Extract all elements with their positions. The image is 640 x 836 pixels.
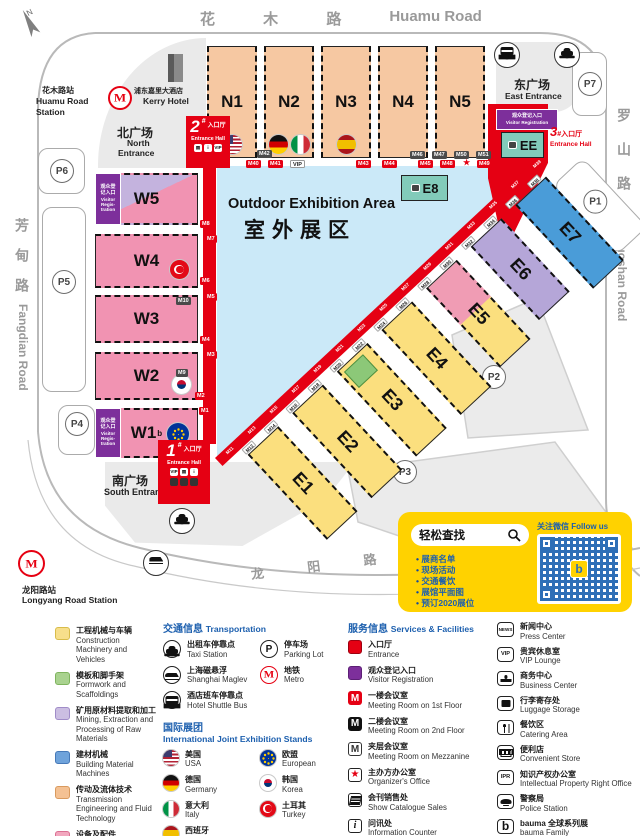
service-icon — [190, 478, 198, 486]
gate-marker: M1 — [199, 407, 211, 415]
gate-marker: M42 — [257, 150, 272, 158]
info-icon: i — [204, 144, 212, 152]
turkey-flag-icon — [170, 260, 189, 279]
hall-label: N4 — [392, 92, 414, 112]
flag-icon — [260, 750, 276, 766]
parking-label-p4: P4 — [65, 412, 89, 436]
follow-us-label: 关注微信 Follow us — [537, 521, 608, 532]
promo-item: 现场活动 — [416, 565, 474, 576]
gate-marker: M40 — [246, 160, 261, 168]
gate-marker: M6 — [200, 277, 212, 285]
kerry-hotel-icon — [168, 54, 183, 82]
hall-e8[interactable]: E8 — [401, 175, 448, 201]
entrance-hall-2[interactable]: 2#入口厅 Entrance Hall ▤iVIP — [186, 116, 230, 168]
hall-n3[interactable]: N3 — [321, 46, 371, 158]
fangdian-road-cn: 芳甸路 — [12, 218, 32, 308]
gate-marker: M44 — [382, 160, 397, 168]
huamu-station-en2: Station — [36, 107, 65, 117]
hall-label: EE — [520, 138, 537, 153]
transport-icon — [163, 640, 181, 658]
gate-marker: M4 — [200, 336, 212, 344]
legend-flag-item: 西班牙Spain — [163, 826, 256, 836]
huamu-station-cn: 花木路站 — [42, 85, 74, 96]
gate-marker: M2 — [195, 392, 207, 400]
road-label-huamu: 花 木 路 Huamu Road — [200, 8, 482, 29]
parking-p6[interactable]: P6 — [38, 148, 85, 194]
facility-icon — [497, 671, 514, 686]
kerry-hotel-cn: 浦东嘉里大酒店 — [134, 86, 183, 96]
legend-facility-item: 知识产权办公室Intellectual Property Right Offic… — [497, 770, 637, 789]
gate-marker: M41 — [268, 160, 283, 168]
legend-service-item: 入口厅Entrance — [348, 640, 493, 659]
facility-icon — [497, 745, 514, 760]
service-icon — [348, 666, 362, 680]
bauma-mark: b — [157, 429, 162, 438]
area-swatch — [55, 672, 70, 685]
area-swatch — [55, 707, 70, 720]
spain-flag-icon — [337, 135, 356, 154]
outdoor-area-label-cn: 室外展区 — [244, 214, 464, 244]
service-icon — [348, 742, 362, 756]
parking-label-p5: P5 — [52, 270, 76, 294]
visitor-registration-w5: 观众登记入口 VisitorRegis-tration — [95, 173, 121, 225]
wechat-promo-box: 轻松查找 展商名单现场活动交通餐饮展馆平面图预订2020展位 关注微信 Foll… — [398, 512, 632, 612]
facility-icon — [497, 720, 514, 735]
facility-icon — [497, 696, 514, 711]
legend-flags: 欧盟European 韩国Korea 土耳其Turkey — [260, 750, 353, 836]
wechat-qr-code[interactable]: b — [537, 534, 621, 604]
hall-label: W2 — [134, 366, 160, 386]
legend-areas: 工程机械与车辆Construction Machinery and Vehicl… — [55, 626, 157, 836]
legend-flag-item: 韩国Korea — [260, 775, 353, 794]
services-title: 服务信息 Services & Facilities — [348, 624, 493, 635]
hall-label: W1 — [131, 423, 157, 443]
gate-marker: M8 — [200, 220, 212, 228]
gate-marker: M48 — [440, 160, 455, 168]
gate-marker: M3 — [205, 351, 217, 359]
promo-item: 展商名单 — [416, 554, 474, 565]
flag-icon — [163, 775, 179, 791]
area-swatch — [55, 751, 70, 764]
north-entrance-en1: North — [127, 138, 150, 148]
area-swatch — [55, 786, 70, 799]
legend-service-item: 二楼会议室Meeting Room on 2nd Floor — [348, 717, 493, 736]
flag-icon — [260, 801, 276, 817]
west-red-corridor — [203, 162, 216, 444]
service-icon — [348, 793, 362, 807]
hall-label: W5 — [134, 189, 160, 209]
legend-facility-item: 餐饮区Catering Area — [497, 720, 637, 739]
legend-facility-item: bauma 全球系列展bauma Family — [497, 819, 637, 836]
legend-area-item: 矿用原材料提取和加工Mining, Extraction and Process… — [55, 706, 157, 744]
hall-label: E8 — [423, 181, 439, 196]
promo-list: 展商名单现场活动交通餐饮展馆平面图预订2020展位 — [416, 554, 474, 609]
flag-icon — [260, 775, 276, 791]
legend-facility-item: 便利店Convenient Store — [497, 745, 637, 764]
gate-marker: M7 — [205, 235, 217, 243]
service-icon — [348, 691, 362, 705]
gate-marker: M51 — [476, 151, 491, 159]
store-icon — [508, 141, 517, 149]
legend-flag-item: 意大利Italy — [163, 801, 256, 820]
vip-icon: VIP — [170, 468, 178, 476]
visitor-registration-ee: 观众登记入口Visitor Registration — [496, 109, 558, 130]
qr-finder — [540, 537, 553, 550]
service-icon — [348, 768, 362, 782]
gate-marker: M49 — [477, 160, 492, 168]
korea-flag-icon — [172, 375, 191, 394]
legend-transport-item: 酒店班车停靠点Hotel Shuttle Bus — [163, 691, 256, 710]
legend-flag-item: 德国Germany — [163, 775, 256, 794]
gate-marker: M9 — [176, 369, 188, 377]
longyang-station-en: Longyang Road Station — [22, 595, 117, 605]
legend-services: 入口厅Entrance 观众登记入口Visitor Registration 一… — [348, 640, 493, 836]
visitor-registration-w1: 观众登记入口 VisitorRegis-tration — [95, 408, 121, 458]
legend-transport: 停车场Parking Lot 地铁Metro — [260, 640, 353, 717]
legend-facility-item: 新闻中心Press Center — [497, 622, 637, 641]
hall-n5[interactable]: N5 — [435, 46, 485, 158]
gate-marker: M50 — [454, 151, 469, 159]
legend-service-item: 主办方办公室Organizer's Office — [348, 768, 493, 787]
vip-icon: VIP — [214, 144, 222, 152]
legend-service-item: 观众登记入口Visitor Registration — [348, 666, 493, 685]
gate-marker: M43 — [356, 160, 371, 168]
legend-facility-item: 商务中心Business Center — [497, 671, 637, 690]
transport-icon — [260, 666, 278, 684]
facility-icon — [497, 622, 514, 637]
store-icon — [411, 184, 420, 192]
legend-service-item: 夹层会议室Meeting Room on Mezzanine — [348, 742, 493, 761]
legend-facility-item: 警察局Police Station — [497, 794, 637, 813]
legend-flag-item: 欧盟European — [260, 750, 353, 769]
legend-area-item: 工程机械与车辆Construction Machinery and Vehicl… — [55, 626, 157, 664]
search-label: 轻松查找 — [419, 527, 465, 543]
legend-area-item: 传动及流体技术Transmission Engineering and Flui… — [55, 785, 157, 823]
huamu-road-en: Huamu Road — [389, 8, 482, 29]
north-entrance-en2: Entrance — [118, 148, 154, 158]
metro-icon — [18, 550, 45, 577]
exhibition-map: N 花 木 路 Huamu Road 罗山路 Luoshan Road 芳甸路 … — [0, 0, 640, 836]
legend-transport-item: 地铁Metro — [260, 666, 353, 685]
legend-transport-item: 上海磁悬浮Shanghai Maglev — [163, 666, 256, 685]
legend-service-item: 一楼会议室Meeting Room on 1st Floor — [348, 691, 493, 710]
legend: 工程机械与车辆Construction Machinery and Vehicl… — [0, 616, 640, 836]
east-entrance-en: East Entrance — [505, 91, 562, 101]
legend-facility-item: 贵宾休息室VIP Lounge — [497, 647, 637, 666]
catalogue-icon: ▤ — [194, 144, 202, 152]
huamu-road-cn: 花 木 路 — [200, 8, 363, 29]
flag-icon — [163, 826, 179, 836]
gate-marker: ★ — [463, 159, 470, 167]
qr-finder — [540, 588, 553, 601]
legend-area-item: 模板和脚手架Formwork and Scaffoldings — [55, 671, 157, 700]
hall-n4[interactable]: N4 — [378, 46, 428, 158]
legend-facilities: 新闻中心Press Center 贵宾休息室VIP Lounge 商务中心Bus… — [497, 622, 637, 836]
area-swatch — [55, 627, 70, 640]
huamu-station-en1: Huamu Road — [36, 96, 88, 106]
legend-flag-item: 土耳其Turkey — [260, 801, 353, 820]
qr-finder — [605, 537, 618, 550]
fangdian-road-en: Fangdian Road — [16, 304, 30, 391]
facility-icon — [497, 647, 514, 662]
legend-flag-item: 美国USA — [163, 750, 256, 769]
legend-area-item: 设备及配件Equipment and Spare Parts — [55, 830, 157, 836]
gate-marker: M46 — [410, 151, 425, 159]
legend-service-item: 会刊销售处Show Catalogue Sales — [348, 793, 493, 812]
legend-transport-item: 出租车停靠点Taxi Station — [163, 640, 256, 659]
parking-p4[interactable]: P4 — [58, 405, 95, 455]
promo-item: 展馆平面图 — [416, 587, 474, 598]
hall-label: N1 — [221, 92, 243, 112]
entrance-hall-1[interactable]: 1#入口厅 Entrance Hall VIP▤i — [158, 440, 210, 504]
joint-stands-title: 国际展团 International Joint Exhibition Stan… — [163, 723, 353, 745]
gate-marker: M10 — [176, 297, 191, 305]
taxi-icon — [169, 508, 195, 534]
transport-icon — [163, 666, 181, 684]
flag-icon — [163, 750, 179, 766]
hall-label: W3 — [134, 309, 160, 329]
hall-n2[interactable]: N2 — [264, 46, 314, 158]
area-swatch — [55, 831, 70, 836]
gate-marker: VIP — [290, 160, 305, 168]
gate-marker: M5 — [205, 293, 217, 301]
search-icon — [507, 528, 521, 542]
catalogue-icon: ▤ — [180, 468, 188, 476]
transport-icon — [163, 691, 181, 709]
service-icon — [180, 478, 188, 486]
service-icon — [348, 819, 362, 833]
facility-icon — [497, 770, 514, 785]
parking-p5[interactable]: P5 — [42, 207, 86, 392]
facility-icon — [497, 819, 514, 834]
gate-marker: M47 — [432, 151, 447, 159]
italy-flag-icon — [291, 135, 310, 154]
transport-title: 交通信息 Transportation — [163, 624, 353, 635]
parking-label-p6: P6 — [50, 159, 74, 183]
entrance-hall-3-label: 3#入口厅 Entrance Hall — [550, 124, 592, 149]
info-icon: i — [190, 468, 198, 476]
legend-area-item: 建材机械Building Material Machines — [55, 750, 157, 779]
service-icon — [348, 717, 362, 731]
facility-icon — [497, 794, 514, 809]
legend-facility-item: 行李寄存处Luggage Storage — [497, 696, 637, 715]
hall-label: N5 — [449, 92, 471, 112]
legend-flags: 美国USA 德国Germany 意大利Italy 西班牙Spain — [163, 750, 256, 836]
bus-icon — [494, 42, 520, 68]
service-icon — [348, 640, 362, 654]
search-pill[interactable]: 轻松查找 — [411, 524, 529, 546]
hall-ee[interactable]: EE — [501, 132, 544, 158]
hall-label: N2 — [278, 92, 300, 112]
transport-icon — [260, 640, 278, 658]
promo-item: 交通餐饮 — [416, 576, 474, 587]
formwork-zone — [344, 354, 378, 388]
legend-transport: 出租车停靠点Taxi Station 上海磁悬浮Shanghai Maglev … — [163, 640, 256, 717]
kerry-hotel-en: Kerry Hotel — [143, 96, 189, 106]
flag-icon — [163, 801, 179, 817]
service-icon — [170, 478, 178, 486]
bauma-logo: b — [570, 560, 588, 578]
legend-service-item: 问讯处Information Counter — [348, 819, 493, 836]
metro-icon — [108, 86, 132, 110]
parking-label-p7: P7 — [578, 72, 602, 96]
hall-w4[interactable]: W4 — [95, 234, 198, 288]
hall-label: N3 — [335, 92, 357, 112]
legend-transport-item: 停车场Parking Lot — [260, 640, 353, 659]
hall-label: W4 — [134, 251, 160, 271]
promo-item: 预订2020展位 — [416, 598, 474, 609]
gate-marker: M45 — [418, 160, 433, 168]
